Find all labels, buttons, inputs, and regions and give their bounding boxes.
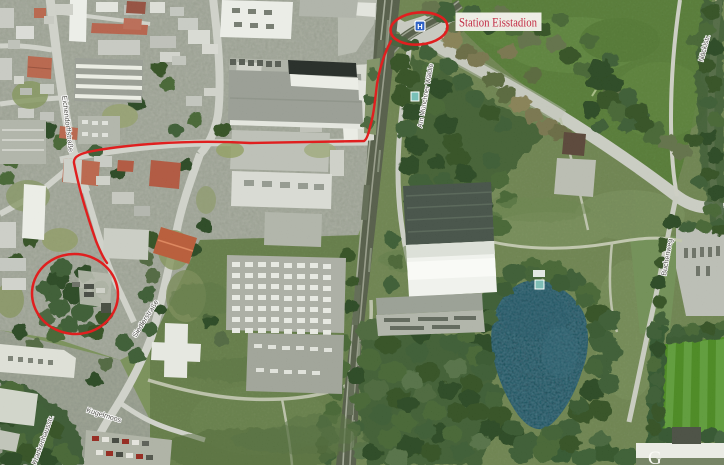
- svg-text:Station Eisstadion: Station Eisstadion: [459, 16, 538, 30]
- svg-text:H: H: [417, 22, 422, 31]
- svg-text:G: G: [648, 448, 662, 465]
